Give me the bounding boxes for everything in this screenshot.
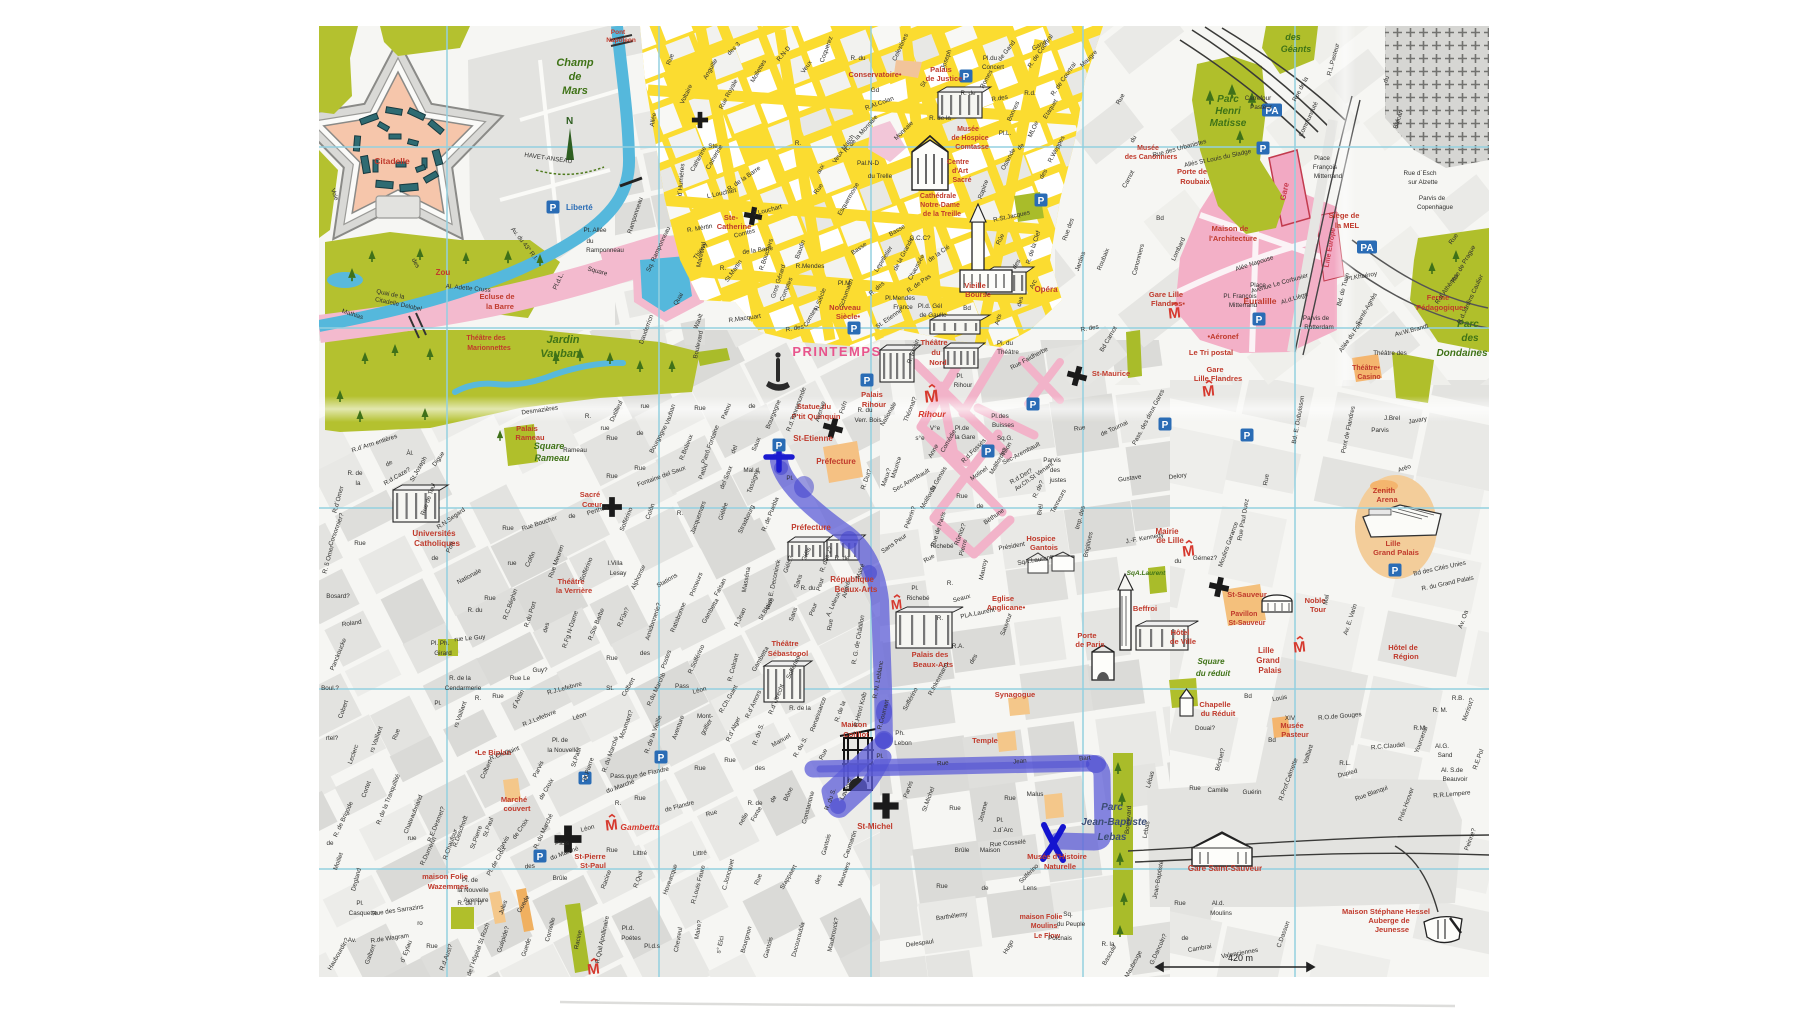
svg-text:Parvis de: Parvis de [1303, 315, 1330, 322]
svg-text:de: de [569, 71, 582, 83]
svg-text:P: P [537, 852, 544, 863]
svg-text:Girard: Girard [434, 650, 452, 657]
svg-text:R. de: R. de [747, 800, 763, 807]
svg-text:Centre: Centre [947, 159, 969, 166]
svg-text:justes: justes [1049, 477, 1066, 484]
svg-text:Jean: Jean [1013, 757, 1028, 765]
svg-text:Rue: Rue [426, 943, 438, 950]
svg-text:P: P [1392, 566, 1399, 577]
svg-text:Lens: Lens [1023, 885, 1037, 892]
svg-text:Pl.: Pl. [996, 817, 1004, 824]
svg-text:Gambetta: Gambetta [620, 822, 659, 832]
svg-text:P: P [1244, 431, 1251, 442]
svg-text:Moulins: Moulins [1210, 910, 1232, 917]
svg-text:Pass.: Pass. [610, 773, 626, 780]
svg-text:rue: rue [407, 835, 417, 842]
svg-text:Pl.d.: Pl.d. [622, 925, 635, 932]
svg-text:Pl.d. Gél: Pl.d. Gél [918, 303, 942, 310]
svg-text:Parc: Parc [1217, 94, 1239, 105]
svg-text:St-Sauveur: St-Sauveur [1229, 620, 1266, 627]
svg-text:Palais des: Palais des [912, 650, 949, 659]
svg-text:Pl. Ph.: Pl. Ph. [431, 640, 450, 647]
svg-text:s°e: s°e [915, 434, 925, 442]
svg-text:Hôtel de: Hôtel de [1388, 643, 1418, 652]
svg-text:Malus: Malus [1027, 791, 1044, 798]
svg-text:Richebé: Richebé [906, 595, 930, 602]
svg-text:P: P [1038, 196, 1045, 207]
svg-text:de: de [981, 885, 989, 892]
svg-text:Théâtre: Théâtre [997, 349, 1019, 356]
svg-text:R. du: R. du [850, 55, 866, 62]
svg-text:R. de: R. de [960, 90, 976, 97]
svg-text:Aventure: Aventure [463, 897, 489, 904]
svg-text:Lille Flandres: Lille Flandres [1194, 374, 1242, 383]
svg-text:des: des [1050, 467, 1060, 474]
svg-text:Beauvoir: Beauvoir [1443, 776, 1468, 783]
svg-text:R.: R. [947, 580, 954, 587]
svg-text:Champ: Champ [556, 57, 594, 69]
svg-text:St.: St. [606, 685, 614, 692]
svg-text:Lille: Lille [1385, 539, 1400, 548]
svg-text:des: des [525, 863, 536, 871]
svg-text:du Réduit: du Réduit [1201, 709, 1236, 718]
svg-text:R.B.: R.B. [1452, 695, 1464, 702]
svg-text:P: P [658, 753, 665, 764]
svg-text:Gantois: Gantois [1030, 543, 1058, 552]
svg-text:Rue: Rue [634, 795, 646, 802]
svg-text:Rue: Rue [634, 465, 646, 472]
svg-text:Rue d´Esch: Rue d´Esch [1404, 170, 1437, 177]
svg-text:Moulins: Moulins [1031, 923, 1058, 930]
svg-text:rue: rue [600, 425, 610, 432]
svg-text:rue: rue [507, 560, 517, 567]
svg-text:Rameau: Rameau [515, 433, 545, 442]
svg-text:Lille: Lille [1258, 646, 1275, 655]
svg-text:du: du [586, 238, 594, 245]
svg-text:Comtasse: Comtasse [955, 144, 989, 151]
svg-text:P: P [776, 441, 783, 452]
svg-text:Pl.d.s: Pl.d.s [644, 943, 660, 950]
svg-text:de: de [976, 503, 984, 510]
svg-text:P: P [963, 72, 970, 83]
svg-text:Rue: Rue [502, 525, 514, 532]
svg-text:Pass: Pass [675, 683, 689, 690]
svg-text:Gérnez?: Gérnez? [1193, 555, 1218, 562]
svg-text:R.A.: R.A. [952, 643, 964, 650]
svg-text:Littré: Littré [633, 850, 647, 857]
svg-text:Parvis de: Parvis de [1419, 195, 1446, 202]
svg-text:François: François [1313, 164, 1337, 171]
svg-text:Pl.L.: Pl.L. [999, 130, 1012, 137]
svg-text:P: P [550, 203, 557, 214]
svg-text:Al.G.: Al.G. [1435, 743, 1449, 750]
svg-text:SqA.Laurent: SqA.Laurent [1127, 570, 1166, 577]
svg-text:du: du [931, 348, 941, 357]
svg-text:Bourse: Bourse [965, 290, 991, 299]
svg-text:Sq.G.: Sq.G. [997, 435, 1013, 442]
svg-text:Sacré: Sacré [952, 177, 971, 184]
svg-text:Poétes: Poétes [621, 935, 641, 942]
svg-text:Théâtre: Théâtre [771, 639, 798, 648]
svg-text:R.: R. [795, 140, 802, 147]
svg-text:Rue: Rue [354, 540, 366, 547]
svg-text:Maison de: Maison de [1212, 224, 1249, 233]
svg-text:Pl.: Pl. [956, 373, 964, 380]
svg-text:XIV: XIV [1285, 715, 1296, 722]
svg-text:Chapelle: Chapelle [1199, 700, 1230, 709]
svg-text:Roubaix: Roubaix [1180, 177, 1210, 186]
svg-text:Zenith: Zenith [1373, 486, 1396, 495]
svg-text:Dondaines: Dondaines [1436, 348, 1488, 359]
svg-text:Théâtre•: Théâtre• [1352, 365, 1380, 372]
svg-text:R. de: R. de [347, 470, 363, 477]
svg-text:Musée: Musée [1280, 721, 1303, 730]
svg-text:de Gaulle: de Gaulle [920, 312, 947, 319]
svg-text:rtel?: rtel? [326, 735, 339, 742]
svg-text:Pasteur: Pasteur [1250, 104, 1272, 111]
svg-text:Copenhague: Copenhague [1417, 204, 1454, 211]
svg-text:Rue: Rue [1174, 900, 1186, 907]
svg-text:Ste-: Ste- [724, 213, 739, 222]
svg-text:Pl.: Pl. [786, 475, 794, 482]
svg-text:Rue: Rue [484, 595, 496, 602]
svg-text:maison Folie: maison Folie [1020, 914, 1063, 921]
svg-text:Parvis: Parvis [1043, 457, 1061, 464]
svg-text:R. de la: R. de la [789, 705, 811, 712]
svg-text:des: des [1461, 333, 1479, 344]
svg-text:Camille: Camille [1208, 787, 1229, 794]
svg-text:Place: Place [1314, 155, 1330, 162]
svg-text:Littré: Littré [693, 849, 708, 857]
svg-text:R. de la: R. de la [929, 115, 951, 122]
svg-text:Square: Square [1197, 657, 1225, 666]
svg-text:ro: ro [417, 920, 423, 927]
svg-text:Place: Place [1250, 282, 1266, 289]
svg-text:R.d.: R.d. [1024, 90, 1036, 97]
svg-text:Henri: Henri [1215, 106, 1241, 117]
svg-text:couvert: couvert [503, 804, 531, 813]
svg-text:J.d´Arc: J.d´Arc [993, 827, 1013, 834]
svg-text:Parc: Parc [1101, 802, 1123, 813]
svg-text:Géants: Géants [1281, 44, 1312, 54]
svg-text:Rue: Rue [1189, 785, 1201, 792]
svg-text:de: de [568, 513, 576, 520]
svg-text:rue: rue [640, 403, 650, 410]
svg-text:Napoleon: Napoleon [606, 37, 636, 44]
svg-text:Al. S.de: Al. S.de [1441, 767, 1464, 774]
svg-text:Sand: Sand [1438, 752, 1453, 759]
svg-text:R.: R. [615, 800, 622, 807]
svg-text:P: P [864, 376, 871, 387]
svg-text:Rue: Rue [724, 757, 736, 764]
svg-text:Vauban: Vauban [540, 348, 580, 360]
svg-text:R.L.: R.L. [1339, 760, 1351, 767]
svg-text:Rameau: Rameau [534, 453, 570, 463]
svg-text:M: M [923, 385, 939, 406]
svg-text:P: P [1030, 400, 1037, 411]
svg-text:St-Sauveur: St-Sauveur [1227, 590, 1267, 599]
svg-text:Pavillon: Pavillon [1231, 611, 1258, 618]
svg-text:P: P [1162, 420, 1169, 431]
svg-text:Pl. de: Pl. de [462, 877, 479, 884]
svg-text:Arena: Arena [1376, 495, 1398, 504]
svg-text:Pl.de: Pl.de [955, 425, 970, 432]
svg-text:Pédagogique•: Pédagogique• [1416, 303, 1466, 312]
svg-text:Mitterrand: Mitterrand [1314, 173, 1343, 180]
svg-text:Grand: Grand [1256, 656, 1280, 665]
svg-text:des: des [1285, 32, 1301, 42]
svg-text:Gare Saint-Sauveur: Gare Saint-Sauveur [1188, 864, 1262, 873]
svg-text:Lebas: Lebas [1098, 832, 1127, 843]
svg-text:Vieille: Vieille [964, 281, 986, 290]
svg-text:Palais: Palais [861, 390, 883, 399]
svg-text:Gare: Gare [1206, 365, 1223, 374]
svg-text:République: République [830, 575, 874, 584]
svg-text:Marionnettes: Marionnettes [467, 345, 511, 352]
svg-text:Rue: Rue [1004, 795, 1016, 802]
svg-text:Marché: Marché [501, 795, 527, 804]
svg-text:P: P [851, 324, 858, 335]
svg-text:Pass: Pass [555, 840, 569, 847]
svg-text:Bart: Bart [1079, 754, 1091, 762]
svg-text:Parvis: Parvis [1371, 427, 1389, 434]
svg-text:Lebon: Lebon [894, 740, 912, 747]
svg-text:St-Etienne: St-Etienne [793, 434, 833, 443]
svg-text:R. du: R. du [857, 407, 873, 414]
svg-text:Zou: Zou [436, 268, 451, 277]
svg-text:G.C.C?: G.C.C? [910, 235, 931, 242]
svg-text:Sacré: Sacré [580, 490, 600, 499]
svg-text:Flandres▪: Flandres▪ [1151, 299, 1185, 308]
svg-text:la Gare: la Gare [955, 434, 976, 441]
svg-text:Matisse: Matisse [1210, 118, 1247, 129]
svg-text:Nord: Nord [929, 358, 947, 367]
svg-text:Ph.: Ph. [895, 730, 905, 737]
svg-text:St-Pierre: St-Pierre [574, 852, 605, 861]
svg-text:P: P [985, 447, 992, 458]
svg-text:Mitterrand: Mitterrand [1229, 302, 1258, 309]
svg-text:St-Maurice: St-Maurice [1092, 369, 1130, 378]
svg-text:sur Alzette: sur Alzette [1408, 179, 1438, 186]
svg-text:PA: PA [1360, 243, 1373, 254]
svg-text:des: des [640, 650, 650, 657]
svg-text:Conservatoire•: Conservatoire• [848, 70, 901, 79]
svg-text:Rue: Rue [492, 693, 504, 700]
svg-text:Théâtre: Théâtre [920, 338, 947, 347]
svg-text:Pal.N-D: Pal.N-D [857, 160, 879, 167]
svg-text:Mont-: Mont- [697, 713, 713, 720]
svg-text:Préfecture: Préfecture [791, 523, 831, 532]
svg-text:Le Tri postal: Le Tri postal [1189, 348, 1233, 357]
svg-text:Notre-Dame: Notre-Dame [920, 202, 960, 209]
svg-text:Bd: Bd [1156, 215, 1164, 222]
svg-text:du Peuple: du Peuple [1057, 921, 1086, 928]
svg-text:Pl. François: Pl. François [1223, 293, 1256, 300]
svg-text:Rihour: Rihour [954, 382, 973, 389]
svg-text:Gare Lille: Gare Lille [1149, 290, 1183, 299]
svg-text:Jeunesse: Jeunesse [1375, 925, 1409, 934]
svg-text:Synagogue: Synagogue [995, 690, 1035, 699]
svg-text:Jean-Baptiste: Jean-Baptiste [1081, 817, 1147, 828]
svg-text:R. du: R. du [467, 607, 483, 614]
svg-text:Jardin: Jardin [546, 334, 579, 346]
svg-text:de la Treille: de la Treille [923, 211, 961, 218]
svg-text:Pl.: Pl. [876, 753, 884, 760]
svg-text:Douai?: Douai? [1195, 725, 1215, 732]
svg-text:Palais: Palais [1258, 666, 1282, 675]
svg-text:M: M [1292, 638, 1306, 656]
svg-text:Rue: Rue [956, 493, 968, 500]
svg-text:Casino: Casino [1357, 374, 1380, 381]
svg-text:Al.d.: Al.d. [1212, 900, 1225, 907]
svg-text:de Paris: de Paris [1075, 640, 1104, 649]
svg-text:Opéra: Opéra [1034, 285, 1058, 294]
svg-text:Rue: Rue [937, 759, 950, 767]
svg-text:Rue: Rue [694, 405, 706, 412]
svg-text:Région: Région [1393, 652, 1419, 661]
svg-text:Liberté: Liberté [566, 203, 593, 212]
svg-text:du: du [1174, 558, 1182, 565]
svg-text:R.Mendes: R.Mendes [796, 263, 825, 270]
svg-text:Ramponneau: Ramponneau [586, 247, 624, 254]
svg-text:Pl.: Pl. [434, 700, 442, 707]
svg-text:Richebé: Richebé [930, 543, 954, 550]
svg-text:Lesay: Lesay [610, 570, 628, 577]
svg-text:Sébastopol: Sébastopol [768, 649, 808, 658]
svg-text:J.Brel: J.Brel [1384, 415, 1400, 422]
svg-text:Rue: Rue [606, 435, 618, 442]
svg-text:de: de [636, 430, 644, 437]
svg-text:St-Paul: St-Paul [580, 861, 606, 870]
svg-text:la Nouvelle: la Nouvelle [547, 747, 579, 754]
svg-text:la Nouvelle: la Nouvelle [457, 887, 489, 894]
svg-text:Hospice: Hospice [1026, 534, 1055, 543]
svg-text:Hôtel: Hôtel [1171, 628, 1190, 637]
svg-text:Préfecture: Préfecture [816, 457, 856, 466]
svg-text:St-Michel: St-Michel [857, 822, 893, 831]
svg-text:Guérin: Guérin [1243, 789, 1262, 796]
svg-text:M: M [1201, 382, 1215, 400]
svg-text:de Hospice: de Hospice [951, 135, 988, 142]
svg-text:de Justice: de Justice [926, 74, 963, 83]
svg-text:des: des [755, 765, 765, 772]
svg-text:Pt. Allée: Pt. Allée [583, 227, 607, 234]
svg-text:Buisses: Buisses [992, 422, 1014, 429]
svg-text:Pl. de: Pl. de [552, 737, 569, 744]
svg-text:Rue: Rue [694, 765, 706, 772]
svg-text:Poicnais: Poicnais [1048, 935, 1072, 942]
svg-text:la Verrière: la Verrière [556, 586, 592, 595]
svg-text:du Trelle: du Trelle [868, 173, 893, 180]
svg-text:Brûle: Brûle [553, 875, 568, 882]
svg-text:Pl. du: Pl. du [997, 340, 1014, 347]
svg-text:Bd: Bd [963, 305, 971, 312]
svg-text:Maison: Maison [980, 847, 1001, 854]
svg-text:Bd: Bd [1268, 737, 1276, 744]
svg-text:Musée: Musée [957, 126, 979, 133]
svg-text:Square: Square [534, 441, 565, 451]
svg-text:R. de la: R. de la [449, 675, 471, 682]
svg-text:Pl.: Pl. [356, 900, 364, 907]
svg-text:R.: R. [585, 413, 592, 420]
svg-text:N: N [566, 116, 573, 127]
svg-text:R. M.: R. M. [1432, 707, 1447, 714]
svg-text:Grand Palais: Grand Palais [1373, 548, 1419, 557]
svg-text:de Ville: de Ville [1170, 637, 1196, 646]
svg-text:R. de: R. de [834, 555, 850, 562]
svg-text:Auberge de: Auberge de [1368, 916, 1409, 925]
svg-text:R.: R. [720, 265, 727, 272]
svg-text:Coilliot: Coilliot [843, 730, 869, 739]
svg-text:Pl.: Pl. [911, 585, 919, 592]
svg-text:la: la [356, 480, 361, 487]
svg-text:R.: R. [677, 510, 684, 517]
svg-text:M: M [890, 596, 903, 612]
svg-text:I.Villa: I.Villa [607, 560, 623, 567]
svg-text:Cathédrale: Cathédrale [920, 193, 956, 200]
svg-text:Boul.?: Boul.? [321, 685, 339, 692]
svg-text:Temple: Temple [972, 736, 998, 745]
svg-text:Mars: Mars [562, 85, 588, 97]
svg-text:de: de [1181, 935, 1189, 942]
svg-text:de: de [748, 403, 756, 410]
svg-text:Rue: Rue [606, 473, 618, 480]
svg-text:du réduit: du réduit [1196, 669, 1231, 678]
svg-text:M: M [604, 816, 618, 834]
svg-text:P: P [1256, 315, 1263, 326]
svg-text:P: P [1260, 144, 1267, 155]
svg-text:la Barre: la Barre [486, 302, 514, 311]
svg-text:de: de [326, 840, 334, 847]
svg-text:Rue: Rue [936, 883, 948, 890]
svg-text:de: de [431, 555, 439, 562]
svg-text:Eglise: Eglise [992, 594, 1014, 603]
svg-text:Théâtre des: Théâtre des [466, 335, 505, 342]
svg-text:•Aéronef: •Aéronef [1208, 332, 1239, 341]
svg-text:Palais: Palais [516, 424, 538, 433]
svg-text:Rotterdam: Rotterdam [1304, 324, 1333, 331]
svg-text:la MEL: la MEL [1335, 221, 1360, 230]
svg-text:des Canonniers: des Canonniers [1125, 154, 1178, 161]
svg-text:Siège de: Siège de [1329, 211, 1360, 220]
svg-text:R.: R. [937, 615, 944, 622]
svg-text:Concert: Concert [982, 64, 1004, 71]
svg-text:Beffroi: Beffroi [1133, 604, 1157, 613]
svg-text:Guy?: Guy? [532, 667, 548, 674]
svg-text:Bd: Bd [1244, 693, 1252, 700]
svg-text:PRINTEMPS: PRINTEMPS [792, 344, 881, 359]
svg-text:Pl.Mendes: Pl.Mendes [885, 295, 915, 302]
svg-text:l'Architecture: l'Architecture [1209, 234, 1257, 243]
svg-text:Théâtre des: Théâtre des [1373, 350, 1407, 357]
svg-text:Rameau: Rameau [563, 447, 587, 454]
svg-text:d'Art: d'Art [952, 168, 969, 175]
svg-text:Rue: Rue [606, 847, 618, 854]
svg-text:V°e: V°e [930, 424, 941, 432]
svg-text:Maison Stéphane Hessel: Maison Stéphane Hessel [1342, 907, 1430, 916]
svg-text:Gd: Gd [871, 87, 880, 94]
svg-text:Citadelle: Citadelle [374, 156, 410, 166]
svg-text:Pont: Pont [611, 29, 626, 36]
svg-text:Porte: Porte [1077, 631, 1096, 640]
svg-text:Cendarmerie: Cendarmerie [445, 685, 482, 692]
svg-text:Rue: Rue [949, 805, 961, 812]
svg-text:Brûle: Brûle [955, 847, 970, 854]
svg-text:R. du: R. du [800, 585, 816, 592]
svg-text:Àl.: Àl. [406, 448, 414, 457]
svg-text:Pl.des: Pl.des [991, 413, 1009, 420]
svg-text:Pasteur: Pasteur [1281, 730, 1309, 739]
